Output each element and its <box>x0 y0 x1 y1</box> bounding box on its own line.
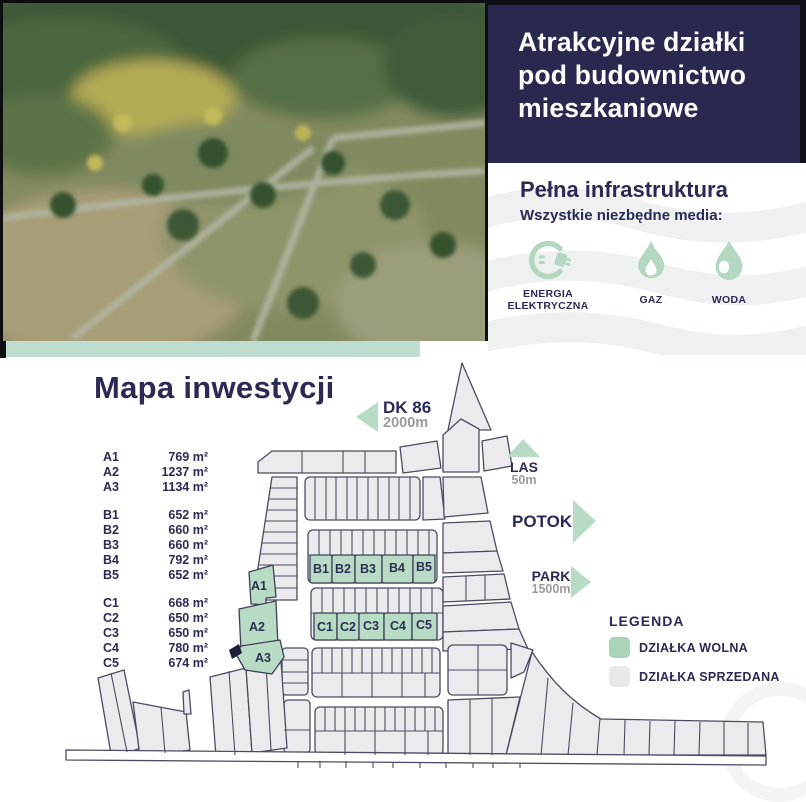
plot-c3-label: C3 <box>363 619 379 633</box>
legend-item-sold: DZIAŁKA SPRZEDANA <box>609 666 780 687</box>
media-woda-label: WODA <box>686 294 772 306</box>
plot-b1-label: B1 <box>313 562 329 576</box>
infra-heading: Pełna infrastruktura <box>520 177 728 203</box>
plot-area: 1237 m² <box>161 465 208 480</box>
plot-row: B3660 m² <box>103 538 208 553</box>
plot-row: C1668 m² <box>103 596 208 611</box>
plot-group-a: A1769 m² A21237 m² A31134 m² <box>103 450 208 495</box>
plot-area: 674 m² <box>168 656 208 671</box>
infra-subheading: Wszystkie niezbędne media: <box>520 207 723 224</box>
plot-id: A3 <box>103 480 119 495</box>
plot-id: C5 <box>103 656 119 671</box>
media-label-line: ELEKTRYCZNA <box>498 300 598 312</box>
aerial-photo-art <box>3 3 485 341</box>
hero-title: Atrakcyjne działki pod budownictwo miesz… <box>518 26 800 125</box>
plot-id: B2 <box>103 523 119 538</box>
plot-row: B2660 m² <box>103 523 208 538</box>
plot-area: 660 m² <box>168 523 208 538</box>
plot-area: 792 m² <box>168 553 208 568</box>
plot-area: 652 m² <box>168 568 208 583</box>
media-energia-label: ENERGIA ELEKTRYCZNA <box>498 288 598 312</box>
plot-area: 660 m² <box>168 538 208 553</box>
plot-c1-label: C1 <box>317 620 333 634</box>
landmark-park: PARK 1500m <box>528 569 574 596</box>
plot-group-c: C1668 m² C2650 m² C3650 m² C4780 m² C567… <box>103 596 208 671</box>
plot-a2-label: A2 <box>249 620 265 634</box>
landmark-name: LAS <box>501 460 547 474</box>
legend-title: LEGENDA <box>609 613 780 629</box>
plot-row: C2650 m² <box>103 611 208 626</box>
plot-row: B1652 m² <box>103 508 208 523</box>
infrastructure-panel: Pełna infrastruktura Wszystkie niezbędne… <box>488 163 806 355</box>
plot-row: A1769 m² <box>103 450 208 465</box>
landmark-las: LAS 50m <box>501 460 547 487</box>
plot-area: 780 m² <box>168 641 208 656</box>
plot-row: A21237 m² <box>103 465 208 480</box>
hero-title-line: mieszkaniowe <box>518 92 800 125</box>
plot-id: C4 <box>103 641 119 656</box>
plot-c4-label: C4 <box>390 619 406 633</box>
plot-row: B5652 m² <box>103 568 208 583</box>
plot-id: A1 <box>103 450 119 465</box>
legend-label: DZIAŁKA WOLNA <box>639 641 748 655</box>
plot-area: 650 m² <box>168 611 208 626</box>
media-energia: ENERGIA ELEKTRYCZNA <box>498 237 598 312</box>
water-drop-icon <box>706 237 752 283</box>
plot-id: C2 <box>103 611 119 626</box>
plot-area: 1134 m² <box>162 480 208 495</box>
plot-area: 650 m² <box>168 626 208 641</box>
hero-banner: Atrakcyjne działki pod budownictwo miesz… <box>488 0 806 163</box>
plot-b4-label: B4 <box>389 561 405 575</box>
plot-row: C4780 m² <box>103 641 208 656</box>
landmark-name: POTOK <box>512 512 572 532</box>
landmark-dk86: DK 86 2000m <box>383 399 431 431</box>
dk86-left-arrow-icon <box>356 402 378 432</box>
plot-b2-label: B2 <box>335 562 351 576</box>
plot-id: C1 <box>103 596 119 611</box>
landmark-name: PARK <box>528 569 574 583</box>
map-title: Mapa inwestycji <box>94 370 335 406</box>
hero-title-line: Atrakcyjne działki <box>518 26 800 59</box>
las-up-arrow-icon <box>507 439 540 457</box>
plot-b5-label: B5 <box>416 560 432 574</box>
landmark-potok: POTOK <box>512 512 572 532</box>
plot-id: B4 <box>103 553 119 568</box>
plot-group-b: B1652 m² B2660 m² B3660 m² B4792 m² B565… <box>103 508 208 583</box>
electric-plug-icon <box>525 237 571 283</box>
park-right-arrow-icon <box>571 566 591 598</box>
aerial-photo <box>0 0 488 341</box>
plot-area: 652 m² <box>168 508 208 523</box>
landmark-distance: 1500m <box>528 583 574 596</box>
media-label-line: ENERGIA <box>498 288 598 300</box>
sold-plot-swatch <box>609 666 630 687</box>
landmark-distance: 50m <box>501 474 547 487</box>
legend-item-free: DZIAŁKA WOLNA <box>609 637 780 658</box>
plot-row: B4792 m² <box>103 553 208 568</box>
plot-a1-label: A1 <box>251 579 267 593</box>
legend: LEGENDA DZIAŁKA WOLNA DZIAŁKA SPRZEDANA <box>609 613 780 687</box>
plot-id: B5 <box>103 568 119 583</box>
flame-icon <box>628 237 674 283</box>
plot-c5-label: C5 <box>416 618 432 632</box>
plot-row: A31134 m² <box>103 480 208 495</box>
landmark-distance: 2000m <box>383 416 431 431</box>
plot-b3-label: B3 <box>360 562 376 576</box>
plot-c2-label: C2 <box>340 620 356 634</box>
potok-right-arrow-icon <box>573 500 596 543</box>
media-gaz: GAZ <box>608 237 694 306</box>
landmark-name: DK 86 <box>383 399 431 416</box>
plot-a3-label: A3 <box>255 651 271 665</box>
plot-id: B1 <box>103 508 119 523</box>
plot-id: B3 <box>103 538 119 553</box>
plot-id: C3 <box>103 626 119 641</box>
plot-area: 769 m² <box>168 450 208 465</box>
plot-area: 668 m² <box>168 596 208 611</box>
plot-id: A2 <box>103 465 119 480</box>
hero-title-line: pod budownictwo <box>518 59 800 92</box>
plot-row: C3650 m² <box>103 626 208 641</box>
plot-row: C5674 m² <box>103 656 208 671</box>
media-woda: WODA <box>686 237 772 306</box>
legend-label: DZIAŁKA SPRZEDANA <box>639 670 780 684</box>
free-plot-swatch <box>609 637 630 658</box>
plot-size-list: A1769 m² A21237 m² A31134 m² B1652 m² B2… <box>103 450 208 684</box>
media-gaz-label: GAZ <box>608 294 694 306</box>
flyer-page: { "hero": { "title_lines": ["Atrakcyjne … <box>0 0 806 768</box>
